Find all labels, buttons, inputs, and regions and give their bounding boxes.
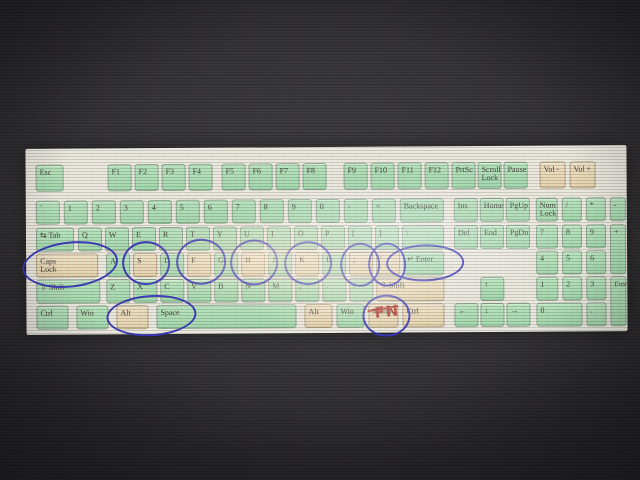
key-scroll-lock[interactable]: ScrollLock [478, 162, 502, 189]
key-vol-minus[interactable]: Vol - [540, 162, 566, 189]
key-np-5[interactable]: 5 [562, 250, 582, 274]
key-arrow-left[interactable]: ← [454, 303, 478, 327]
key-minus[interactable]: - [344, 199, 368, 223]
key-f4[interactable]: F4 [189, 164, 213, 191]
key-backspace[interactable]: Backspace [400, 198, 444, 222]
key-digit-4[interactable]: 4 [148, 200, 172, 224]
key-f2[interactable]: F2 [135, 164, 159, 191]
key-f12[interactable]: F12 [425, 162, 449, 189]
key-digit-9[interactable]: 9 [288, 199, 312, 223]
key-digit-0[interactable]: 0 [316, 199, 340, 223]
key-f3[interactable]: F3 [162, 164, 186, 191]
keyboard-panel: EscF1F2F3F4F5F6F7F8F9F10F11F12PrtScScrol… [25, 145, 627, 335]
key-f7[interactable]: F7 [276, 163, 300, 190]
photo-of-monitor: EscF1F2F3F4F5F6F7F8F9F10F11F12PrtScScrol… [0, 0, 640, 480]
key-np-6[interactable]: 6 [586, 250, 606, 274]
red-fn-label: FN [374, 301, 401, 322]
key-left-win[interactable]: Win [76, 305, 108, 329]
key-ins[interactable]: Ins [454, 198, 478, 222]
key-b[interactable]: B [214, 279, 238, 303]
key-digit-2[interactable]: 2 [92, 200, 116, 224]
key-arrow-right[interactable]: → [506, 303, 530, 327]
key-esc[interactable]: Esc [36, 165, 64, 192]
key-digit-1[interactable]: 1 [64, 200, 88, 224]
key-np-8[interactable]: 8 [562, 224, 582, 248]
key-pgdn[interactable]: PgDn [506, 225, 530, 249]
key-f8[interactable]: F8 [303, 163, 327, 190]
key-np-4[interactable]: 4 [536, 251, 558, 275]
key-pause[interactable]: Pause [504, 162, 528, 189]
key-np-multiply[interactable]: * [586, 197, 606, 221]
key-np-1[interactable]: 1 [536, 277, 558, 301]
key-np-plus[interactable]: + [610, 224, 626, 274]
key-right-alt[interactable]: Alt [304, 304, 332, 328]
key-digit-8[interactable]: 8 [260, 199, 284, 223]
key-digit-5[interactable]: 5 [176, 200, 200, 224]
key-pgup[interactable]: PgUp [506, 198, 530, 222]
key-f1[interactable]: F1 [108, 164, 132, 191]
key-np-9[interactable]: 9 [586, 224, 606, 248]
key-np-3[interactable]: 3 [586, 276, 606, 300]
key-f9[interactable]: F9 [344, 163, 368, 190]
key-np-divide[interactable]: / [562, 197, 582, 221]
key-digit-3[interactable]: 3 [120, 200, 144, 224]
key-right-win[interactable]: Win [336, 304, 364, 328]
key-m[interactable]: M [268, 278, 292, 302]
key-np-enter[interactable]: Enter [610, 276, 626, 326]
key-prtsc[interactable]: PrtSc [452, 162, 476, 189]
key-end[interactable]: End [480, 225, 504, 249]
circle-h [230, 239, 279, 286]
key-np-2[interactable]: 2 [562, 276, 582, 300]
key-f11[interactable]: F11 [398, 162, 422, 189]
key-period[interactable]: . [322, 278, 346, 302]
key-f5[interactable]: F5 [222, 163, 246, 190]
key-del[interactable]: Del [454, 225, 478, 249]
key-home[interactable]: Home [480, 198, 504, 222]
key-f6[interactable]: F6 [249, 163, 273, 190]
key-digit-6[interactable]: 6 [204, 200, 228, 224]
key-left-ctrl[interactable]: Ctrl [36, 306, 68, 330]
key-np-minus[interactable]: - [610, 197, 626, 221]
key-np-dot[interactable]: . [586, 302, 606, 326]
key-f10[interactable]: F10 [371, 163, 395, 190]
key-np-7[interactable]: 7 [536, 225, 558, 249]
key-arrow-up[interactable]: ↑ [480, 277, 504, 301]
key-backtick[interactable]: ` [36, 201, 60, 225]
key-arrow-down[interactable]: ↓ [480, 303, 504, 327]
key-digit-7[interactable]: 7 [232, 199, 256, 223]
key-vol-plus[interactable]: Vol + [570, 161, 596, 188]
key-np-0[interactable]: 0 [536, 302, 582, 326]
circle-enter [386, 243, 465, 282]
key-num-lock[interactable]: NumLock [536, 198, 558, 222]
key-equals[interactable]: = [372, 199, 396, 223]
